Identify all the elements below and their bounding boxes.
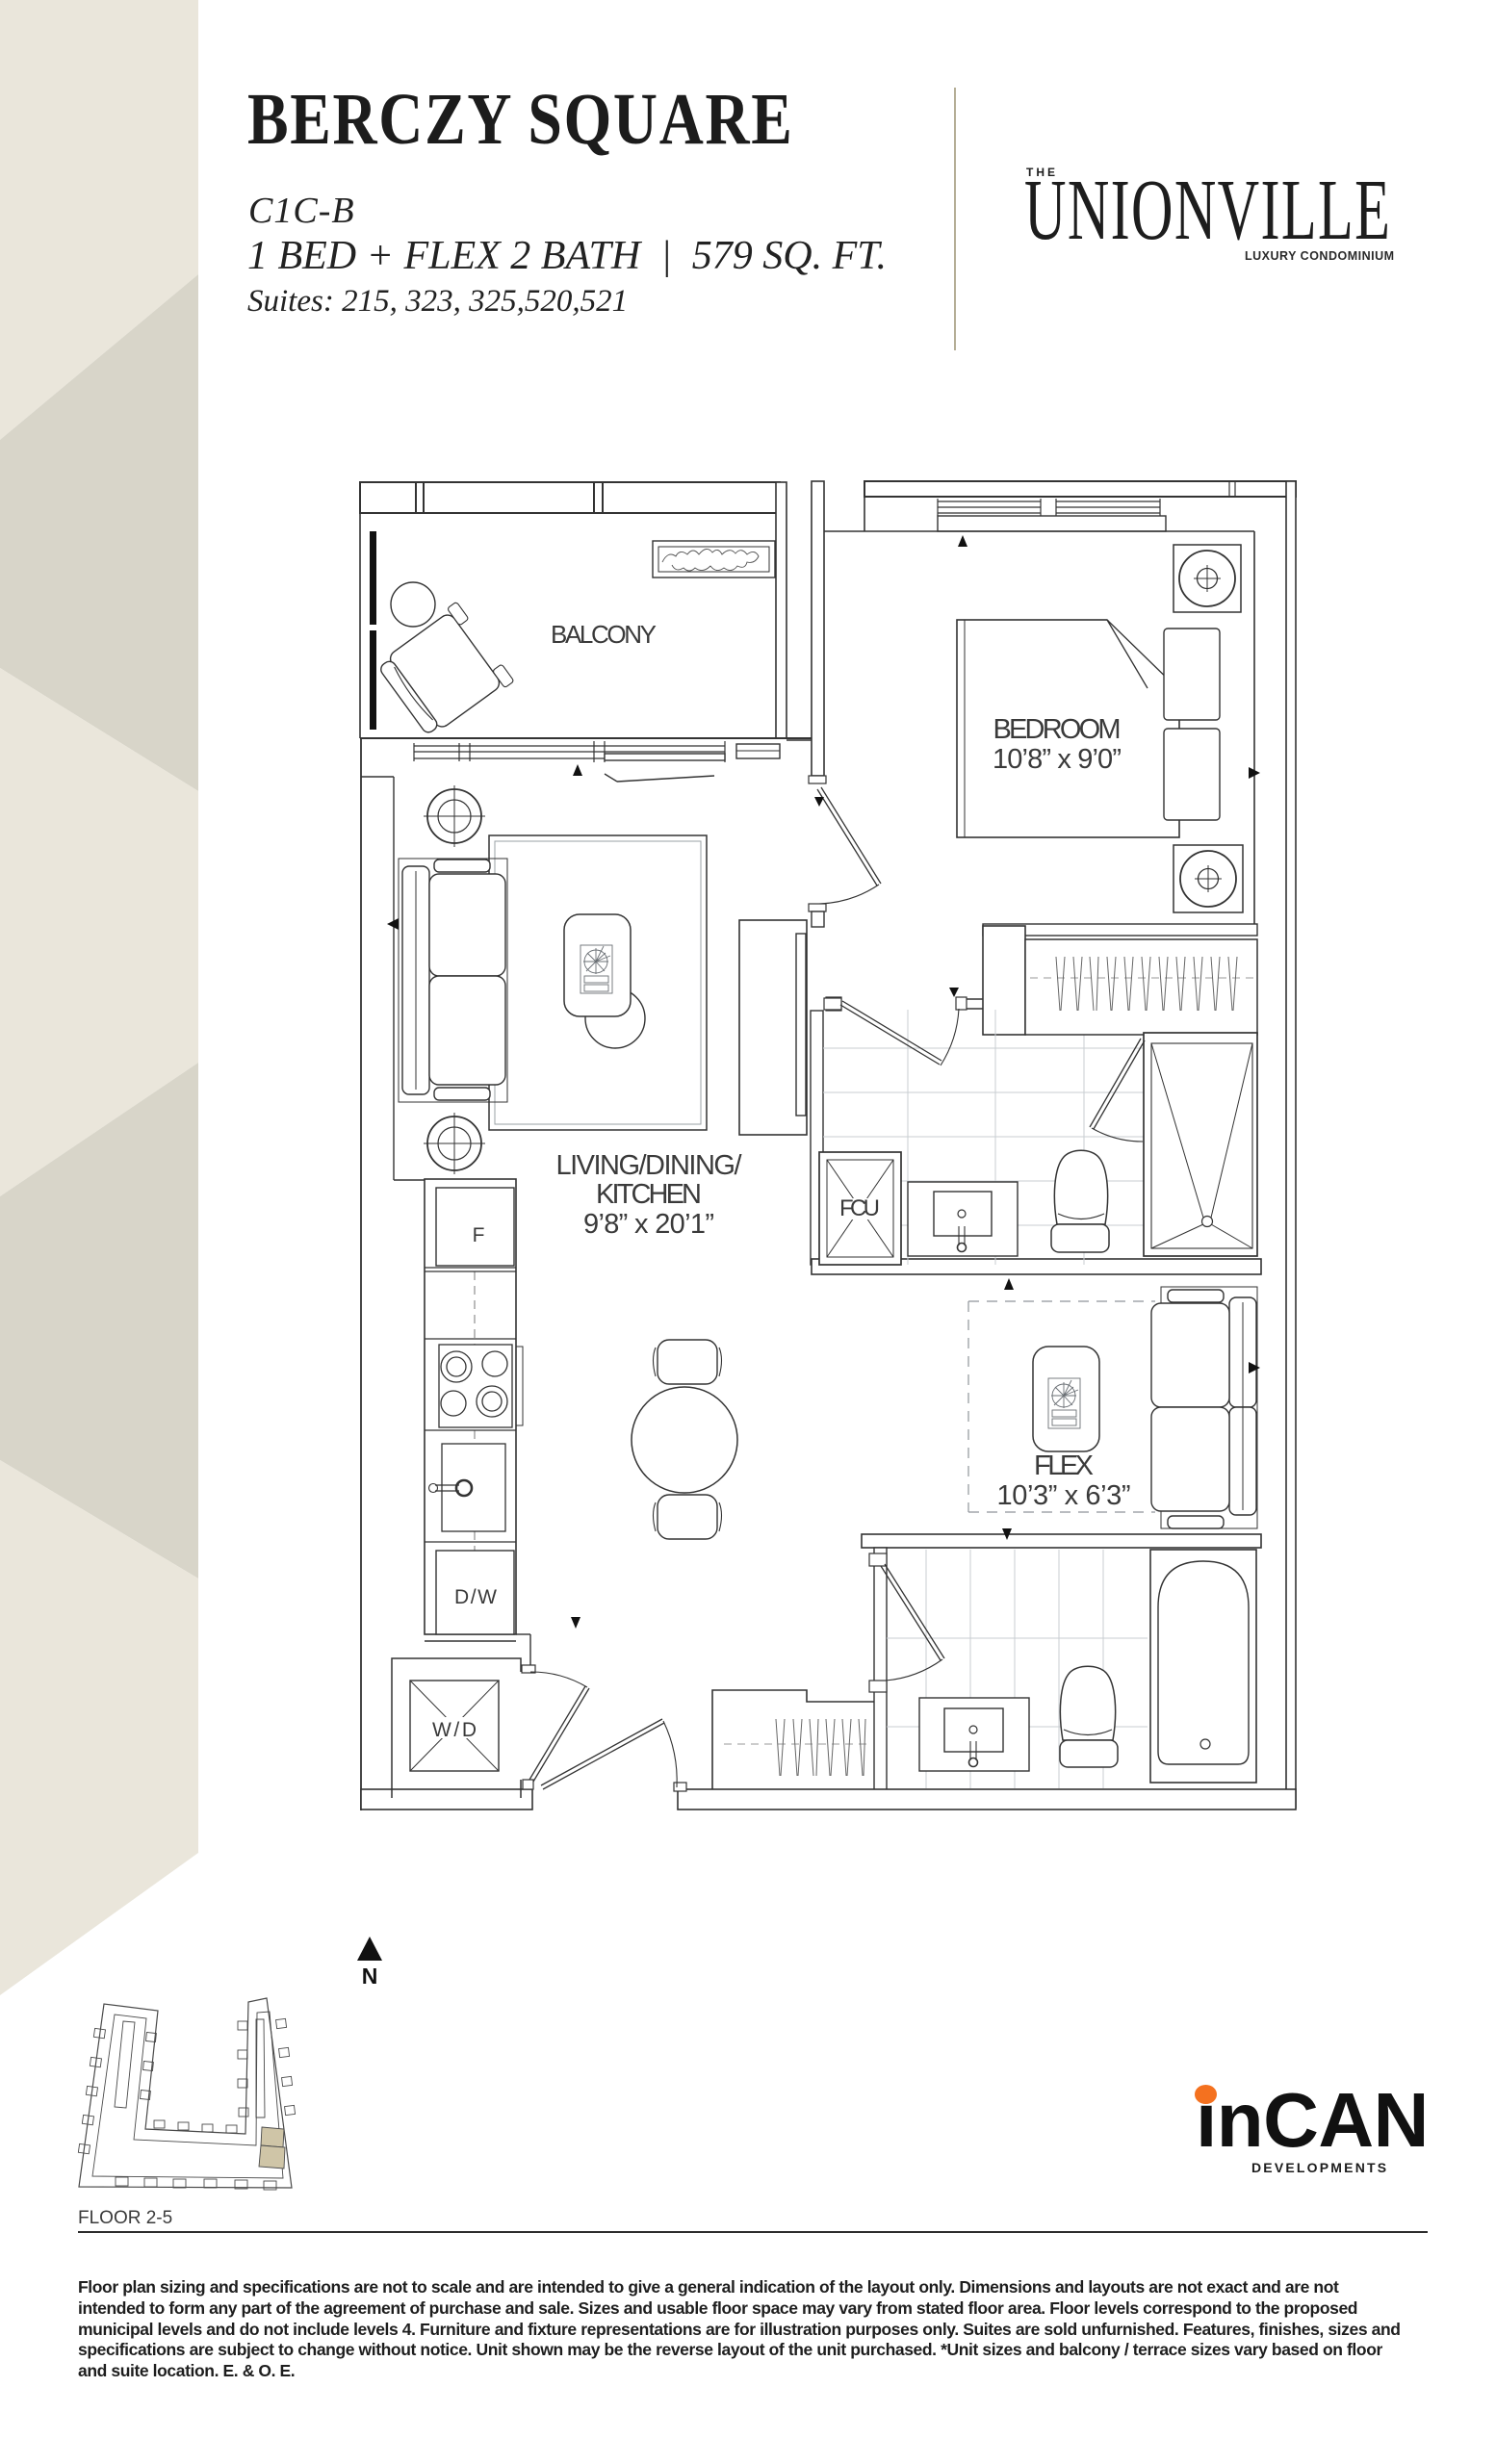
svg-text:KITCHEN: KITCHEN <box>596 1179 702 1210</box>
svg-text:BALCONY: BALCONY <box>551 620 657 649</box>
svg-text:N: N <box>362 1963 378 1989</box>
svg-text:BEDROOM: BEDROOM <box>993 714 1122 745</box>
svg-text:D/W: D/W <box>454 1586 497 1608</box>
svg-text:F: F <box>473 1224 485 1246</box>
svg-text:LIVING/DINING/: LIVING/DINING/ <box>556 1150 743 1181</box>
svg-text:FLEX: FLEX <box>1034 1450 1094 1481</box>
svg-text:9’8” x 20’1”: 9’8” x 20’1” <box>583 1209 714 1240</box>
svg-text:10’3” x 6’3”: 10’3” x 6’3” <box>997 1480 1131 1511</box>
svg-text:FCU: FCU <box>839 1195 880 1221</box>
svg-text:W/D: W/D <box>432 1719 477 1741</box>
svg-text:10’8” x 9’0”: 10’8” x 9’0” <box>993 744 1122 775</box>
